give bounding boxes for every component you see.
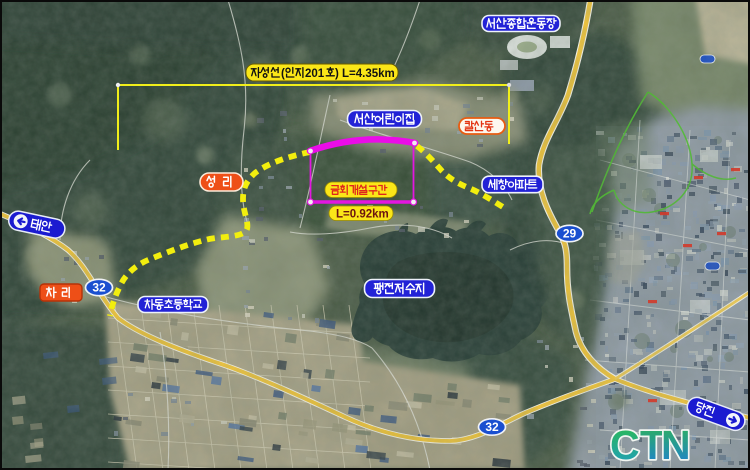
- svg-text:C: C: [610, 422, 640, 468]
- svg-text:201: 201: [305, 68, 325, 80]
- svg-text:(: (: [281, 68, 285, 80]
- svg-text:N: N: [661, 422, 691, 468]
- svg-text:L=0.92km: L=0.92km: [336, 209, 389, 221]
- svg-text:32: 32: [485, 420, 499, 434]
- svg-text:32: 32: [92, 281, 106, 295]
- svg-text:29: 29: [563, 227, 577, 241]
- svg-text:) L=4.35km: ) L=4.35km: [335, 68, 395, 80]
